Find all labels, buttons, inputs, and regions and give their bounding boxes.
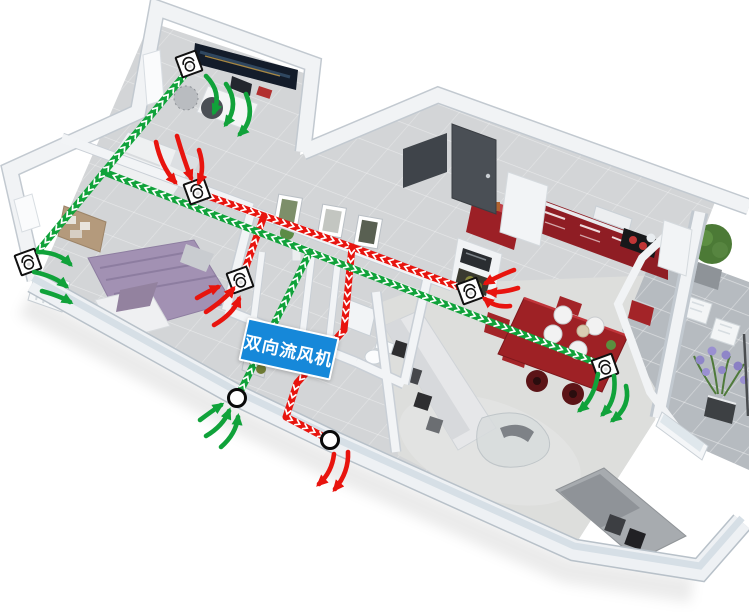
airflow-arrow-supply — [38, 252, 70, 264]
airflow-arrow-supply — [580, 374, 598, 410]
airflow-arrow-supply — [240, 94, 250, 134]
airflow-arrow-exhaust — [177, 136, 191, 178]
airflow-arrow-supply — [34, 272, 66, 286]
airflow-arrow-exhaust — [156, 142, 175, 182]
airflow-arrow-exhaust — [199, 150, 202, 182]
airflow-arrow-exhaust — [489, 288, 518, 292]
floorplan-stage: 双向流风机 — [0, 0, 749, 612]
supply-duct-line — [104, 67, 191, 172]
airflow-arrow-supply — [200, 405, 221, 420]
airflow-arrow-exhaust — [486, 270, 514, 283]
airflow-arrow-supply — [42, 291, 70, 302]
airflow-arrow-supply — [226, 84, 233, 124]
supply-duct-line — [30, 172, 104, 261]
exhaust-duct-line — [352, 247, 467, 292]
intake-node-icon — [229, 390, 246, 407]
vent-diffuser-icon-kitchen-exhaust — [457, 278, 484, 305]
airflow-arrow-exhaust — [197, 287, 218, 298]
airflow-arrow-supply — [206, 76, 217, 112]
vent-diffuser-icon-study-supply — [176, 51, 203, 78]
supply-duct-line — [310, 251, 602, 365]
airflow-arrow-exhaust — [335, 452, 348, 489]
exhaust-node-icon — [322, 432, 339, 449]
airflow-arrow-exhaust — [485, 299, 510, 306]
airflow-arrow-supply — [603, 376, 615, 414]
ventilation-overlay — [0, 0, 749, 612]
supply-duct-line — [104, 172, 310, 253]
airflow-arrow-exhaust — [319, 454, 334, 484]
